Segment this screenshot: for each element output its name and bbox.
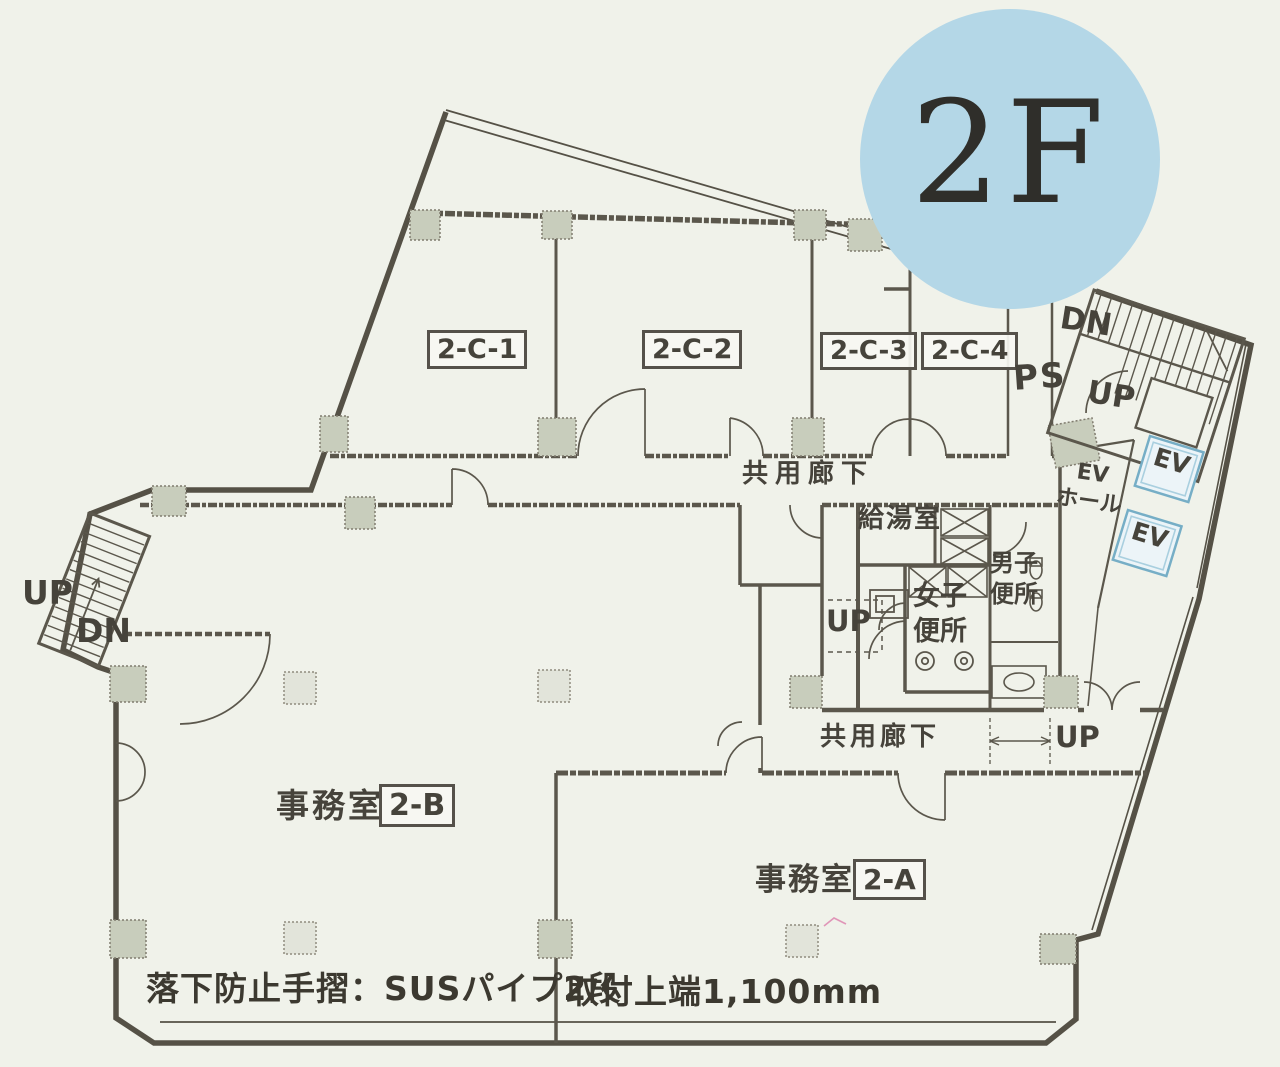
office-b-chip: 2-B [379,784,455,827]
pink-check-mark [824,918,846,926]
up-label-left: UP [22,576,73,611]
unit-chip-2c1: 2-C-1 [427,330,527,369]
note-mount-height: 取付上端1,100mm [566,975,882,1010]
mens-toilet-line1: 男子 [990,548,1038,579]
kitchen-label: 給湯室 [858,506,942,533]
office-a-label: 事務室 [755,864,854,897]
corridor-label-lower: 共用廊下 [820,724,940,751]
note-handrail: 落下防止手摺：SUSパイプ2段 [146,972,621,1007]
ps-label: PS [1012,358,1068,397]
mens-toilet-label: 男子 便所 [990,548,1038,609]
womens-toilet-line2: 便所 [913,615,967,650]
floor-badge-text: 2F [911,71,1110,236]
mens-toilet-line2: 便所 [990,579,1038,610]
ev-hall-label: EV ホール [1054,456,1127,521]
womens-toilet-line1: 女子 [913,580,967,615]
up-label-upper-right: UP [1085,376,1137,416]
floorplan-page: 2F 2-C-1 2-C-2 2-C-3 2-C-4 事務室 2-B 事務室 2… [0,0,1280,1067]
floor-badge: 2F [860,9,1160,309]
unit-chip-2c2: 2-C-2 [642,330,742,369]
office-a-chip: 2-A [853,859,926,900]
dn-label-left: DN [76,614,131,649]
dn-label-upper-right: DN [1058,302,1114,342]
unit-chip-2c4: 2-C-4 [921,332,1018,370]
up-label-corridor: UP [1055,722,1100,752]
unit-chip-2c3: 2-C-3 [820,332,917,370]
corridor-label-upper: 共用廊下 [742,461,874,488]
womens-toilet-label: 女子 便所 [913,580,967,649]
office-b-label: 事務室 [276,789,384,824]
up-label-middle: UP [826,606,871,636]
